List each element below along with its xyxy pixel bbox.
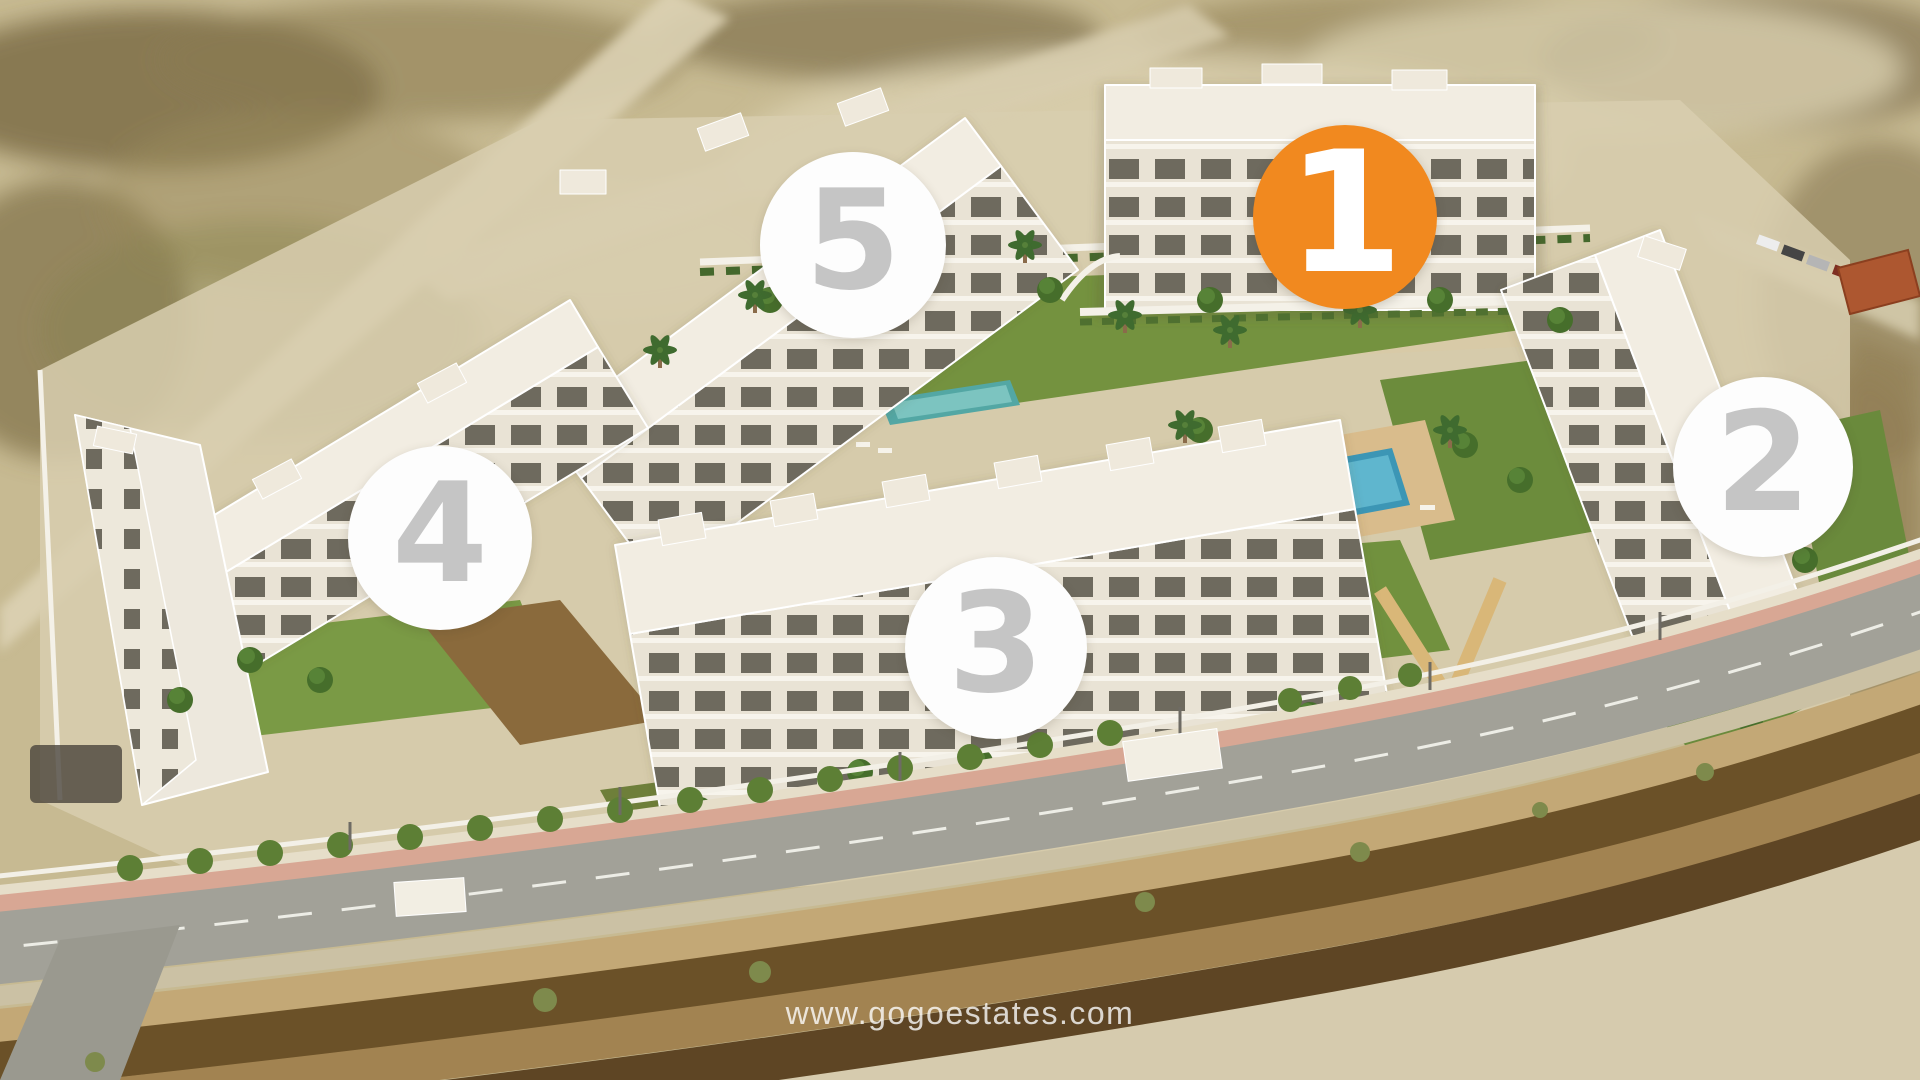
block-marker-5-label: 5 <box>805 172 901 310</box>
scene-svg <box>0 0 1920 1080</box>
block-marker-1-label: 1 <box>1287 129 1404 297</box>
block-marker-2-label: 2 <box>1715 394 1811 532</box>
gabion-wall <box>30 745 122 803</box>
block-marker-4: 4 <box>348 446 532 630</box>
block-marker-4-label: 4 <box>392 465 488 603</box>
block-marker-5: 5 <box>760 152 946 338</box>
block-marker-1: 1 <box>1253 125 1437 309</box>
block-marker-2: 2 <box>1673 377 1853 557</box>
watermark: www.gogoestates.com <box>786 995 1135 1032</box>
listing-photo: 1 2 3 4 5 www.gogoestates.com <box>0 0 1920 1080</box>
block-marker-3: 3 <box>905 557 1087 739</box>
block-marker-3-label: 3 <box>948 575 1044 713</box>
